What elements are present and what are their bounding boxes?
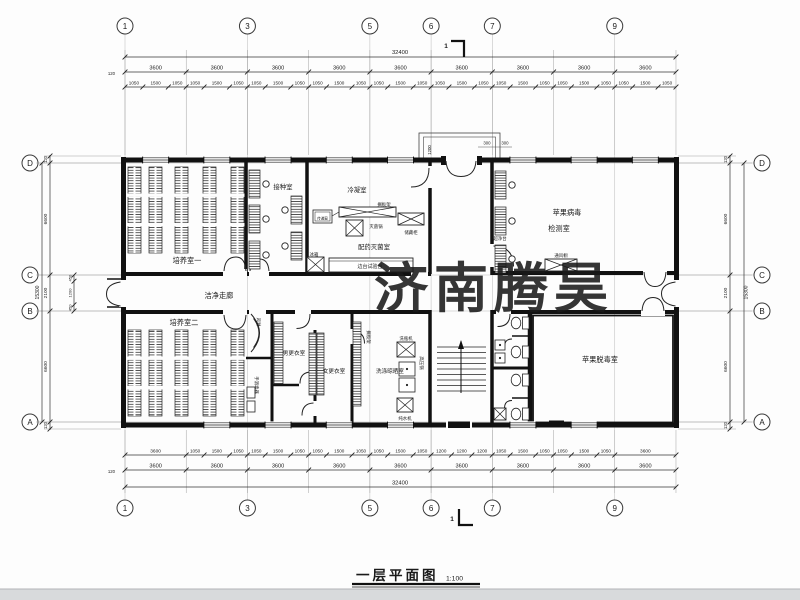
dim-text: 1050	[601, 449, 612, 454]
dim-text: 3600	[394, 464, 406, 470]
culture-shelf-rack-icon	[128, 386, 142, 389]
culture-shelf-rack-icon	[237, 167, 239, 253]
culture-shelf-rack-icon	[203, 223, 217, 226]
dim-text: 3600	[211, 464, 223, 470]
dim-text: 1050	[172, 81, 183, 86]
dim-text: 1050	[129, 81, 140, 86]
culture-shelf-rack-icon	[175, 223, 189, 226]
room-label-women-changing: 女更衣室	[323, 367, 346, 375]
dim-text: 1050	[417, 449, 428, 454]
clean-bench-icon	[495, 171, 506, 199]
watermark-text: 济南腾昊	[374, 259, 614, 319]
dim-text: 1500	[395, 81, 406, 86]
dim-text: 1200	[436, 449, 447, 454]
clean-bench-icon	[249, 205, 260, 233]
dim-text: 1500	[640, 81, 651, 86]
label-fume-hood: 通风橱	[554, 252, 568, 259]
floor-plan-svg: 113355667799DDCCBBAA 3240036003600360036…	[0, 0, 800, 600]
grid-bubble-label: C	[759, 271, 765, 280]
dim-text: 1050	[312, 449, 323, 454]
dim-text: 32400	[392, 50, 408, 56]
dim-text: 1200	[477, 449, 488, 454]
dim-text: 3600	[578, 66, 590, 72]
dim-text: 3600	[272, 464, 284, 470]
dim-text: 1050	[356, 449, 367, 454]
dim-text: 15300	[744, 285, 750, 299]
door-opening	[223, 269, 247, 278]
culture-shelf-rack-icon	[231, 386, 245, 389]
dim-text: 1050	[295, 449, 306, 454]
dim-text: 3600	[149, 464, 161, 470]
door-opening	[641, 307, 665, 316]
dim-text: 120	[108, 469, 116, 474]
stool-icon	[263, 216, 269, 222]
dim-text: 1500	[518, 81, 529, 86]
clean-bench-icon	[249, 241, 260, 269]
dim-text: 120	[723, 155, 728, 163]
room-label-air-shower: 风淋	[255, 318, 262, 327]
dim-text: 1050	[295, 81, 306, 86]
dim-text: 3600	[455, 66, 467, 72]
toilet-icon	[523, 346, 530, 358]
wash-basin-icon	[499, 344, 501, 346]
dim-text: 3600	[578, 464, 590, 470]
dim-text: 1050	[557, 449, 568, 454]
grid-bubble-label: D	[759, 159, 765, 168]
grid-bubble-label: 3	[245, 22, 250, 31]
culture-shelf-rack-icon	[203, 386, 217, 389]
room-label-detox: 苹果脱毒室	[582, 355, 618, 364]
dim-text: 1050	[190, 449, 201, 454]
door-opening	[119, 280, 128, 307]
dim-text: 6600	[43, 361, 49, 372]
dim-text: 3600	[517, 66, 529, 72]
culture-shelf-rack-icon	[149, 386, 163, 389]
culture-shelf-rack-icon	[209, 330, 211, 416]
grid-bubble-label: 5	[368, 22, 373, 31]
dim-text: 1500	[212, 449, 223, 454]
dim-text: 1500	[273, 449, 284, 454]
grid-bubble-label: 5	[368, 504, 373, 513]
dim-text: 1500	[395, 449, 406, 454]
label-autoclave: 高压锅	[418, 356, 425, 370]
room-label-condensation: 冷凝室	[347, 185, 367, 194]
dim-text: 1500	[334, 449, 345, 454]
dim-text: 1200	[457, 449, 468, 454]
dim-text: 1050	[417, 81, 428, 86]
dim-text: 1050	[374, 81, 385, 86]
threshold-mark	[448, 422, 470, 429]
autoclave-icon	[406, 368, 408, 370]
grid-bubble-label: C	[27, 271, 33, 280]
grid-bubble-label: 7	[490, 22, 495, 31]
section-mark-number: 1	[444, 43, 448, 50]
culture-shelf-rack-icon	[231, 223, 245, 226]
culture-shelf-rack-icon	[134, 330, 136, 416]
dim-text: 1500	[518, 449, 529, 454]
culture-shelf-rack-icon	[231, 194, 245, 197]
door-opening	[249, 269, 269, 278]
dim-text: 3600	[333, 66, 345, 72]
dim-text: 120	[43, 421, 48, 429]
label-water-purifier: 纯水机	[398, 415, 412, 422]
dim-text: 6600	[723, 213, 729, 224]
culture-shelf-rack-icon	[231, 357, 245, 360]
dim-text: 1500	[579, 81, 590, 86]
culture-shelf-rack-icon	[128, 223, 142, 226]
dim-text: 3600	[394, 66, 406, 72]
grid-bubble-label: D	[27, 159, 33, 168]
dim-text: 450	[68, 304, 73, 311]
room-label-washing: 洗涤晾晒室	[376, 367, 404, 375]
door-opening	[643, 268, 667, 277]
dim-text: 1050	[233, 81, 244, 86]
label-fridge: 冰箱	[310, 251, 319, 258]
dim-text: 1050	[662, 81, 673, 86]
room-label-corridor: 洁净走廊	[205, 291, 234, 300]
wash-basin-icon	[499, 357, 501, 359]
dim-text: 32400	[392, 480, 408, 486]
culture-shelf-rack-icon	[175, 386, 189, 389]
section-mark-number: 1	[450, 516, 454, 523]
label-shelf-rack: 搁板架	[377, 201, 391, 208]
dim-text: 2100	[723, 287, 729, 298]
toilet-icon	[511, 346, 521, 358]
dim-text: 1500	[273, 81, 284, 86]
dim-text: 1050	[496, 81, 507, 86]
dim-text: 3600	[333, 464, 345, 470]
dim-text: 1500	[150, 81, 161, 86]
culture-shelf-rack-icon	[149, 223, 163, 226]
clean-bench-icon	[291, 232, 302, 260]
dim-text: 1050	[233, 449, 244, 454]
grid-bubble-label: 1	[123, 22, 128, 31]
autoclave-icon	[406, 384, 408, 386]
drawing-title: 一层平面图	[356, 568, 439, 583]
dim-text: 1050	[356, 81, 367, 86]
dim-text: 1050	[619, 81, 630, 86]
grid-bubble-label: 6	[429, 504, 434, 513]
locker-icon	[309, 333, 316, 395]
hand-sanitizer-icon	[247, 401, 255, 412]
label-shelf-rack2: 搁板架	[365, 330, 372, 344]
culture-shelf-rack-icon	[237, 330, 239, 416]
culture-shelf-rack-icon	[155, 330, 157, 416]
room-label-cultivation2: 培养室二	[170, 318, 199, 327]
label-sterilizer: 灭菌锅	[369, 223, 383, 230]
dim-text: 120	[723, 421, 728, 429]
culture-shelf-rack-icon	[128, 194, 142, 197]
stool-icon	[263, 181, 269, 187]
culture-shelf-rack-icon	[203, 357, 217, 360]
door-opening	[295, 307, 311, 316]
toilet-icon	[511, 374, 521, 386]
dim-text: 1500	[334, 81, 345, 86]
shelf-strip-icon	[353, 322, 361, 406]
culture-shelf-rack-icon	[209, 167, 211, 253]
dim-text: 1050	[540, 449, 551, 454]
culture-shelf-rack-icon	[128, 357, 142, 360]
locker-icon	[317, 333, 324, 395]
room-label-inoculation: 接种室	[273, 182, 293, 191]
dim-text: 3600	[517, 464, 529, 470]
threshold-mark	[549, 421, 564, 428]
label-bottle-washer: 洗瓶机	[399, 335, 413, 342]
porch-depth-dim: 1200	[427, 145, 432, 155]
dim-text: 1050	[251, 449, 262, 454]
dim-text: 3600	[640, 449, 651, 455]
stool-icon	[509, 182, 515, 188]
dim-text: 1050	[540, 81, 551, 86]
label-pass-window: 传递窗	[317, 216, 328, 221]
room-label-men-changing: 男更衣室	[283, 349, 306, 357]
culture-shelf-rack-icon	[203, 194, 217, 197]
culture-shelf-rack-icon	[149, 357, 163, 360]
stool-icon	[282, 207, 288, 213]
culture-shelf-rack-icon	[175, 357, 189, 360]
dim-text: 6600	[723, 361, 729, 372]
dim-text: 450	[68, 274, 73, 281]
grid-bubble-label: 6	[429, 22, 434, 31]
toilet-icon	[523, 408, 530, 420]
grid-bubble-label: A	[759, 418, 765, 427]
dim-text: 1050	[435, 81, 446, 86]
hand-sanitizer-icon	[247, 387, 255, 398]
dim-text: 15300	[35, 285, 41, 299]
dim-text: 1050	[190, 81, 201, 86]
room-label-detection-line2: 检测室	[548, 224, 570, 233]
toilet-icon	[511, 408, 521, 420]
dim-text: 1050	[601, 81, 612, 86]
threshold-mark	[441, 156, 446, 165]
stool-icon	[509, 218, 515, 224]
porch-col-dim: 300	[483, 141, 491, 146]
dim-text: 120	[43, 155, 48, 163]
porch-col-dim: 300	[501, 141, 509, 146]
dim-text: 1050	[312, 81, 323, 86]
dim-text: 1050	[557, 81, 568, 86]
door-opening	[672, 280, 681, 307]
dim-text: 2100	[43, 287, 49, 298]
culture-shelf-rack-icon	[181, 330, 183, 416]
culture-shelf-rack-icon	[155, 167, 157, 253]
culture-shelf-rack-icon	[181, 167, 183, 253]
grid-bubble-label: 3	[245, 504, 250, 513]
clean-bench-icon	[249, 170, 260, 198]
clean-bench-icon	[291, 196, 302, 224]
grid-bubble-label: 1	[123, 504, 128, 513]
dim-text: 3600	[150, 449, 161, 455]
label-hand-sanitizer: 手消毒器	[253, 376, 260, 394]
dim-text: 6600	[43, 213, 49, 224]
door-opening	[445, 154, 477, 165]
grid-bubble-label: B	[27, 307, 32, 316]
label-storage-cabinet: 储藏柜	[404, 229, 418, 236]
dim-text: 1050	[496, 449, 507, 454]
footer-bar	[0, 589, 800, 600]
toilet-icon	[523, 374, 530, 386]
clean-bench-icon	[495, 207, 506, 235]
floor-plan-page: 113355667799DDCCBBAA 3240036003600360036…	[0, 0, 800, 600]
dim-text: 3600	[455, 464, 467, 470]
culture-shelf-rack-icon	[149, 194, 163, 197]
dim-text: 1050	[251, 81, 262, 86]
label-clean-bench: 超净台	[493, 235, 507, 242]
dim-text: 3600	[211, 66, 223, 72]
dim-text: 1500	[457, 81, 468, 86]
threshold-mark	[477, 156, 482, 165]
room-label-preparation: 配药灭菌室	[358, 242, 391, 251]
drawing-scale: 1:100	[446, 576, 463, 583]
dim-text: 3600	[639, 66, 651, 72]
locker-icon	[274, 322, 283, 384]
grid-bubble-label: B	[759, 307, 764, 316]
grid-bubble-label: A	[27, 418, 33, 427]
dim-text: 3600	[149, 66, 161, 72]
culture-shelf-rack-icon	[175, 194, 189, 197]
dim-text: 1200	[68, 288, 73, 298]
room-label-detection-line1: 苹果病毒	[553, 208, 582, 217]
dim-text: 1500	[579, 449, 590, 454]
room-label-cultivation1: 培养室一	[173, 256, 202, 265]
dim-text: 1050	[478, 81, 489, 86]
door-opening	[223, 307, 247, 316]
stool-icon	[282, 243, 288, 249]
grid-bubble-label: 9	[613, 504, 618, 513]
stool-icon	[263, 252, 269, 258]
grid-bubble-label: 7	[490, 504, 495, 513]
dim-text: 120	[108, 71, 116, 76]
dim-text: 3600	[639, 464, 651, 470]
dim-text: 1500	[212, 81, 223, 86]
dim-text: 1050	[374, 449, 385, 454]
dim-text: 3600	[272, 66, 284, 72]
culture-shelf-rack-icon	[134, 167, 136, 253]
grid-bubble-label: 9	[613, 22, 618, 31]
